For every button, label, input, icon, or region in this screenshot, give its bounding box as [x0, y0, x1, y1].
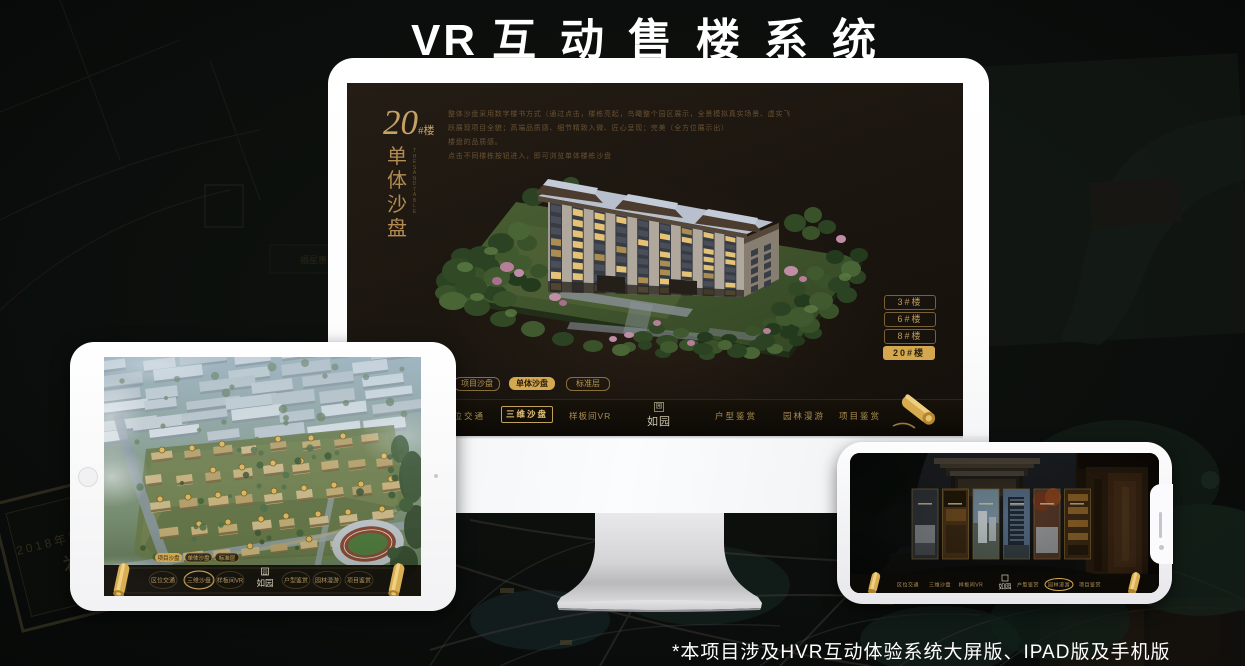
svg-text:户型鉴赏: 户型鉴赏: [284, 577, 308, 585]
svg-text:标准层: 标准层: [219, 554, 236, 562]
svg-text:三维沙盘: 三维沙盘: [929, 582, 951, 589]
svg-text:区位交通: 区位交通: [897, 582, 919, 589]
svg-text:项目沙盘: 项目沙盘: [157, 554, 180, 562]
svg-text:单体沙盘: 单体沙盘: [187, 554, 210, 562]
svg-text:如园: 如园: [256, 578, 273, 588]
svg-text:如园: 如园: [999, 582, 1012, 591]
svg-text:项目鉴赏: 项目鉴赏: [1079, 582, 1101, 589]
svg-text:样板间VR: 样板间VR: [217, 577, 244, 585]
svg-text:项目鉴赏: 项目鉴赏: [347, 577, 371, 585]
svg-text:区位交通: 区位交通: [151, 577, 175, 585]
svg-text:园林漫游: 园林漫游: [1048, 582, 1070, 589]
svg-text:三维沙盘: 三维沙盘: [187, 577, 211, 585]
svg-text:园: 园: [262, 570, 267, 576]
svg-text:样板间VR: 样板间VR: [959, 582, 983, 589]
svg-text:园林漫游: 园林漫游: [315, 577, 339, 585]
svg-text:户型鉴赏: 户型鉴赏: [1017, 582, 1039, 589]
